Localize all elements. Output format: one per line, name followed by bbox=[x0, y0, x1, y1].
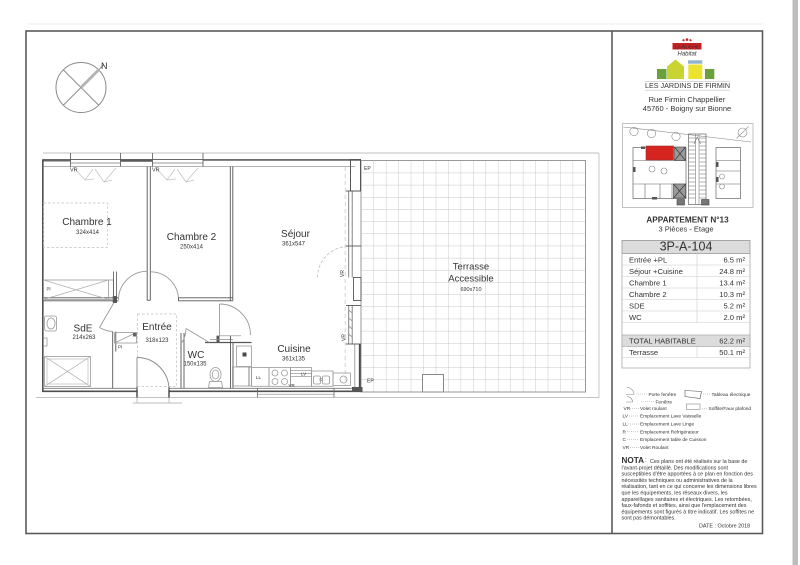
svg-text:LL: LL bbox=[256, 375, 262, 380]
svg-text:Cuisine: Cuisine bbox=[277, 344, 311, 355]
svg-text:WC: WC bbox=[629, 313, 642, 322]
svg-text:Emplacement Réfrigérateur: Emplacement Réfrigérateur bbox=[640, 429, 699, 435]
svg-text:VR: VR bbox=[342, 334, 348, 341]
svg-text:690x710: 690x710 bbox=[460, 287, 481, 293]
svg-text:3P-A-104: 3P-A-104 bbox=[660, 240, 713, 254]
svg-text:VR: VR bbox=[70, 168, 78, 174]
svg-text:Rue Firmin Chappellier: Rue Firmin Chappellier bbox=[649, 95, 726, 104]
svg-text:Chambre 2: Chambre 2 bbox=[167, 232, 217, 243]
svg-text:Pl: Pl bbox=[118, 345, 122, 350]
svg-text:361x135: 361x135 bbox=[282, 357, 306, 363]
svg-text:Terrasse: Terrasse bbox=[453, 262, 489, 273]
svg-text:VR: VR bbox=[623, 445, 630, 451]
svg-text:N: N bbox=[101, 61, 108, 71]
svg-text:Séjour +Cuisine: Séjour +Cuisine bbox=[629, 267, 683, 276]
svg-text:45760 - Boigny sur Bionne: 45760 - Boigny sur Bionne bbox=[643, 104, 731, 113]
svg-text:susceptibles d'être apportées: susceptibles d'être apportées à ce plan … bbox=[622, 472, 754, 478]
svg-text:2.0 m²: 2.0 m² bbox=[723, 313, 745, 322]
svg-text:Ces plans ont été réalisés sur: Ces plans ont été réalisés sur la base d… bbox=[650, 459, 747, 465]
svg-text:LA RUCHE: LA RUCHE bbox=[675, 44, 699, 50]
svg-text:équipements sont figurés à tit: équipements sont figurés à titre indicat… bbox=[622, 509, 755, 515]
svg-text:Volet Roulant: Volet Roulant bbox=[640, 445, 669, 451]
svg-text:que les équipements, les résea: que les équipements, les réseaux divers,… bbox=[622, 491, 728, 497]
svg-text:250x414: 250x414 bbox=[180, 245, 204, 251]
svg-text:WC: WC bbox=[188, 350, 205, 361]
svg-text:APPARTEMENT N°13: APPARTEMENT N°13 bbox=[646, 216, 729, 225]
svg-text:sont pas démontables.: sont pas démontables. bbox=[622, 516, 676, 522]
svg-text:NOTA: NOTA bbox=[622, 456, 645, 465]
svg-text:Pl: Pl bbox=[47, 287, 51, 292]
svg-text:318x123: 318x123 bbox=[145, 338, 169, 344]
svg-text:Entrée: Entrée bbox=[142, 322, 172, 333]
svg-text:Chambre 2: Chambre 2 bbox=[629, 290, 667, 299]
svg-text:VR: VR bbox=[289, 383, 296, 388]
svg-text:Chambre 1: Chambre 1 bbox=[629, 278, 667, 287]
svg-text:Emplacement table de Cuisson: Emplacement table de Cuisson bbox=[640, 437, 707, 443]
svg-text:62.2 m²: 62.2 m² bbox=[719, 337, 745, 346]
svg-text:faux-fafonds et soffites, ains: faux-fafonds et soffites, ainsi que l'em… bbox=[622, 503, 747, 509]
svg-text:Porte fenêtre: Porte fenêtre bbox=[649, 392, 677, 398]
svg-text:50.1 m²: 50.1 m² bbox=[719, 348, 745, 357]
svg-text:Séjour: Séjour bbox=[281, 229, 311, 240]
svg-text:LL: LL bbox=[623, 422, 629, 428]
svg-text:l'avant-projet détaillé. Des m: l'avant-projet détaillé. Des modificatio… bbox=[622, 465, 729, 471]
svg-text:Chambre 1: Chambre 1 bbox=[62, 217, 112, 228]
svg-text:24.8 m²: 24.8 m² bbox=[719, 267, 745, 276]
svg-text:EP: EP bbox=[367, 379, 374, 385]
svg-text:nécessités techniques ou admin: nécessités techniques ou administratives… bbox=[622, 478, 733, 484]
svg-text:TOTAL HABITABLE: TOTAL HABITABLE bbox=[629, 337, 696, 346]
svg-text:6.5 m²: 6.5 m² bbox=[723, 255, 745, 264]
svg-text:324x414: 324x414 bbox=[76, 230, 100, 236]
svg-text:Volet roulant: Volet roulant bbox=[640, 406, 667, 412]
svg-text:appareillages sanitaires et él: appareillages sanitaires et électriques.… bbox=[622, 497, 753, 503]
svg-text:150x135: 150x135 bbox=[183, 362, 207, 368]
svg-text:Emplacement Lave Linge: Emplacement Lave Linge bbox=[640, 422, 694, 428]
svg-text:Tableau électrique: Tableau électrique bbox=[712, 392, 751, 398]
svg-text:10.3 m²: 10.3 m² bbox=[719, 290, 745, 299]
svg-text:LV: LV bbox=[623, 414, 629, 420]
svg-text:5.2 m²: 5.2 m² bbox=[723, 301, 745, 310]
svg-text:EP: EP bbox=[364, 166, 371, 172]
svg-text:SDE: SDE bbox=[629, 301, 645, 310]
svg-text:Fenêtre: Fenêtre bbox=[656, 399, 673, 405]
svg-text:VR: VR bbox=[624, 406, 631, 412]
svg-text:Soffite/Faux plafond: Soffite/Faux plafond bbox=[709, 406, 752, 412]
svg-text:Habitat: Habitat bbox=[677, 52, 696, 58]
svg-text:361x547: 361x547 bbox=[282, 242, 306, 248]
svg-text:LES JARDINS DE FIRMIN: LES JARDINS DE FIRMIN bbox=[645, 81, 730, 90]
svg-text:3 Pièces - Etage: 3 Pièces - Etage bbox=[658, 225, 713, 234]
svg-text:13.4 m²: 13.4 m² bbox=[719, 278, 745, 287]
svg-text:LV: LV bbox=[301, 372, 306, 377]
svg-text:VR: VR bbox=[152, 168, 160, 174]
svg-text:C: C bbox=[623, 437, 627, 443]
svg-text:DATE : Octobre 2018: DATE : Octobre 2018 bbox=[699, 524, 750, 530]
svg-text:R: R bbox=[623, 429, 627, 435]
svg-text:Terrasse: Terrasse bbox=[629, 348, 658, 357]
svg-text:214x263: 214x263 bbox=[72, 335, 96, 341]
svg-text:Accessible: Accessible bbox=[448, 274, 493, 285]
svg-text:Entrée +PL: Entrée +PL bbox=[629, 255, 667, 264]
svg-text:réalisation, tant en ce qui co: réalisation, tant en ce qui concerne les… bbox=[622, 484, 757, 490]
svg-text:Emplacement Lave Vaisselle: Emplacement Lave Vaisselle bbox=[640, 414, 702, 420]
svg-text:SdE: SdE bbox=[74, 324, 93, 335]
